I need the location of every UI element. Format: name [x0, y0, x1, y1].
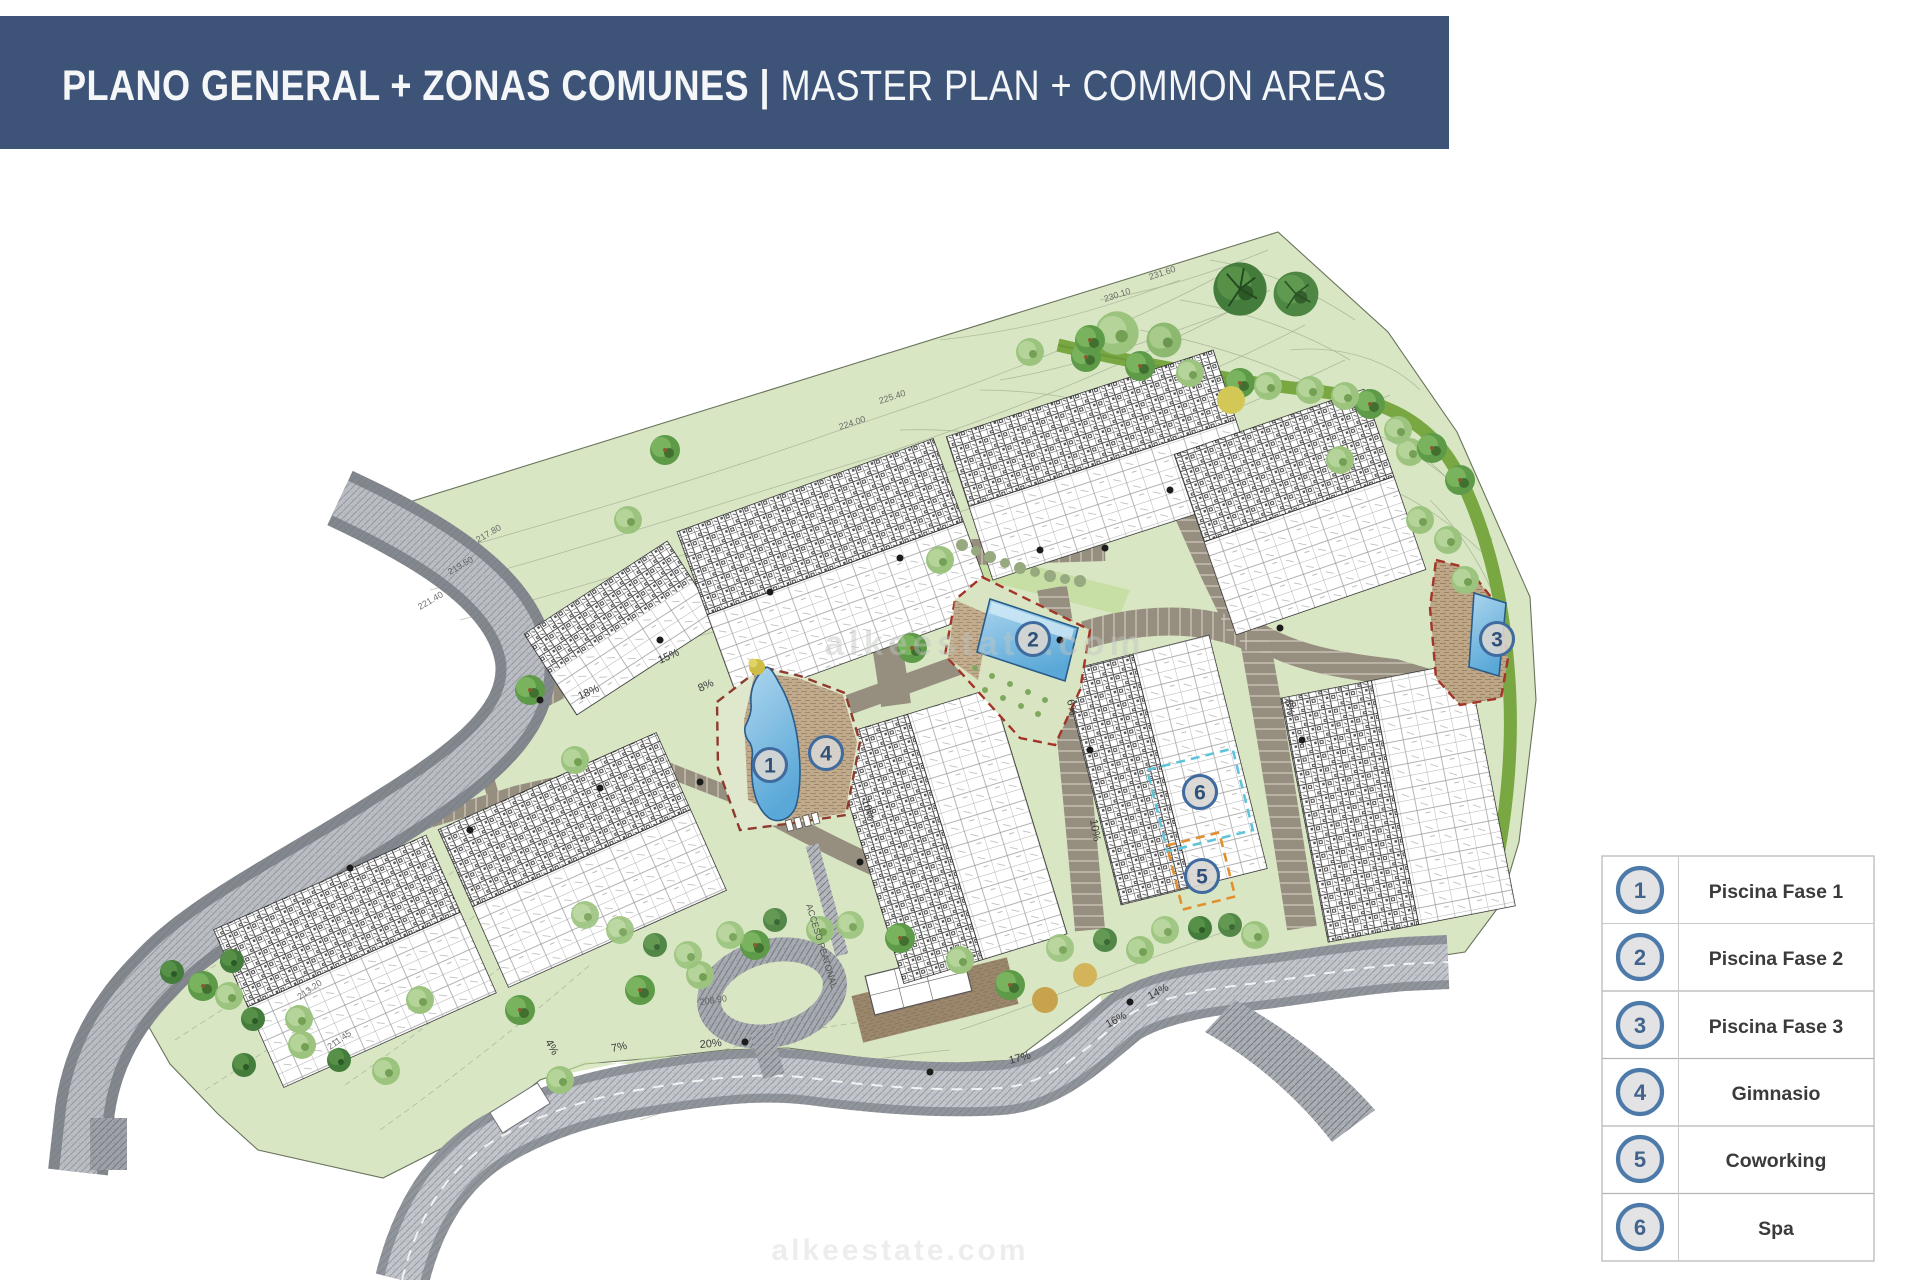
svg-text:1: 1: [1634, 878, 1646, 903]
svg-text:Piscina Fase 2: Piscina Fase 2: [1709, 948, 1844, 970]
svg-text:6: 6: [1194, 782, 1206, 805]
svg-text:Spa: Spa: [1758, 1218, 1794, 1240]
svg-text:20%: 20%: [699, 1037, 722, 1051]
svg-text:2: 2: [1027, 629, 1039, 652]
svg-text:3: 3: [1634, 1013, 1646, 1038]
svg-text:4: 4: [820, 743, 832, 766]
svg-text:5: 5: [1634, 1147, 1646, 1172]
svg-text:5: 5: [1196, 866, 1208, 889]
svg-text:Gimnasio: Gimnasio: [1732, 1083, 1821, 1105]
svg-text:1: 1: [764, 755, 776, 778]
svg-text:Coworking: Coworking: [1726, 1150, 1827, 1172]
svg-text:Piscina Fase 1: Piscina Fase 1: [1709, 881, 1844, 903]
svg-text:PLANO GENERAL + ZONAS COMUNES: PLANO GENERAL + ZONAS COMUNES | MASTER P…: [62, 62, 1387, 109]
svg-text:2: 2: [1634, 945, 1646, 970]
svg-text:6: 6: [1634, 1215, 1646, 1240]
svg-text:4: 4: [1634, 1080, 1647, 1105]
svg-text:alkeestate.com: alkeestate.com: [825, 624, 1146, 663]
svg-text:Piscina Fase 3: Piscina Fase 3: [1709, 1016, 1844, 1038]
svg-text:alkeestate.com: alkeestate.com: [771, 1234, 1028, 1267]
svg-text:3: 3: [1491, 629, 1503, 652]
